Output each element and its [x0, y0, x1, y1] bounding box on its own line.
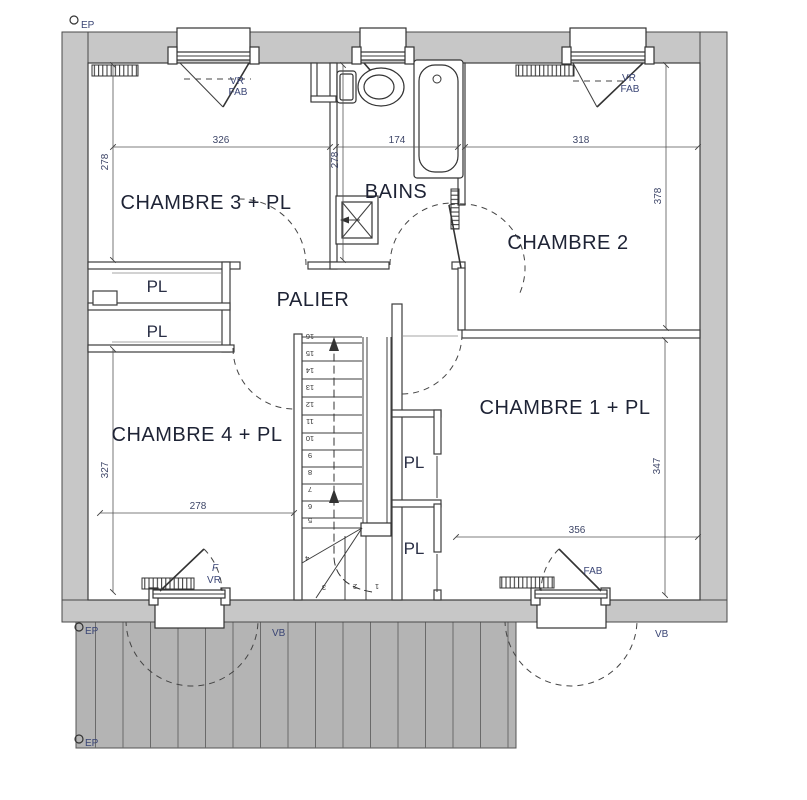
radiator-chambre1	[500, 577, 554, 588]
closet-label-right-top: PL	[404, 453, 425, 472]
stair-step-number: 14	[306, 366, 314, 375]
stair-step-number: 8	[308, 468, 312, 477]
deck-terrace: EP EP VB VB	[75, 618, 669, 749]
dim-chambre2-depth: 378	[653, 187, 664, 204]
stair-step-number: 7	[308, 485, 312, 494]
door-arc-chambre1	[402, 334, 462, 394]
room-label-chambre1: CHAMBRE 1 + PL	[480, 397, 651, 419]
dim-chambre1-width: 356	[569, 525, 586, 536]
room-label-chambre3: CHAMBRE 3 + PL	[121, 192, 292, 214]
radiator-chambre2	[516, 65, 574, 76]
room-label-chambre2: CHAMBRE 2	[507, 232, 628, 254]
door-arc-bains	[390, 203, 452, 265]
room-label-palier: PALIER	[277, 289, 350, 311]
stair-step-number: 11	[306, 417, 314, 426]
closet-label-left-top: PL	[147, 277, 168, 296]
stair-step-number: 10	[306, 434, 314, 443]
vb-label-left: VB	[272, 628, 286, 639]
closet-label-right-bottom: PL	[404, 539, 425, 558]
dim-chambre4-width: 278	[190, 501, 207, 512]
stair-step-number: 6	[308, 502, 312, 511]
stair-step-number: 13	[306, 383, 314, 392]
stair-step-number: 12	[306, 400, 314, 409]
dim-chambre3-width: 326	[213, 135, 230, 146]
fab-label-window-chambre1: FAB	[584, 566, 603, 577]
towel-radiator	[451, 189, 459, 229]
dim-bains-width: 174	[389, 135, 406, 146]
f-label-window-chambre4: F	[212, 563, 219, 574]
stair-step-number: 4	[305, 554, 309, 563]
door-arc-chambre4	[233, 348, 294, 409]
dim-chambre2-width: 318	[573, 135, 590, 146]
winder-edge	[302, 528, 362, 563]
stair-step-number: 1	[375, 582, 379, 591]
window-chambre3: VR FAB	[168, 28, 259, 107]
vr-label-window3: VR	[230, 76, 244, 87]
walk-arrow-icon	[329, 337, 339, 351]
vb-label-right: VB	[655, 629, 669, 640]
shower-sink	[336, 196, 378, 244]
floor-plan-page: EP EP VB VB EP VR FAB F	[0, 0, 807, 800]
dim-chambre3-depth: 278	[100, 153, 111, 170]
ep-marker-icon	[70, 16, 78, 24]
stair-step-number: 2	[353, 582, 357, 591]
floor-plan-drawing: EP EP VB VB EP VR FAB F	[0, 0, 807, 800]
room-label-bains: BAINS	[365, 181, 428, 203]
radiator-chambre4	[142, 578, 194, 589]
stair-step-number: 3	[322, 583, 326, 592]
ep-label-deck-top: EP	[85, 626, 99, 637]
stair-newel	[361, 523, 391, 536]
stair-step-number: 16	[306, 332, 314, 341]
room-label-chambre4: CHAMBRE 4 + PL	[112, 424, 283, 446]
fab-label-window-chambre2: FAB	[621, 84, 640, 95]
window-chambre2: VR FAB	[562, 28, 654, 107]
shutter-swing-arc-right	[505, 620, 637, 686]
stair-step-number: 9	[308, 451, 312, 460]
stair-step-number: 15	[306, 349, 314, 358]
walk-arrow-icon	[329, 489, 339, 503]
fab-label-window3: FAB	[229, 87, 248, 98]
vr-label-window-chambre4: VR	[207, 575, 221, 586]
bathtub	[414, 60, 463, 178]
closet-label-left-bottom: PL	[147, 322, 168, 341]
ep-label-deck-bottom: EP	[85, 738, 99, 749]
ep-label-top: EP	[81, 20, 95, 31]
dim-chambre1-depth: 347	[652, 457, 663, 474]
dim-bains-depth: 278	[330, 151, 341, 168]
staircase: 16 15 14 13 12 11 10 9 8 7 6 5 4 3 2 1	[302, 332, 391, 600]
toilet	[337, 68, 404, 106]
ep-marker-top: EP	[70, 16, 95, 31]
dim-chambre4-depth: 327	[100, 461, 111, 478]
radiator-chambre3	[92, 65, 138, 76]
vr-label-window-chambre2: VR	[622, 73, 636, 84]
stair-step-number: 5	[308, 516, 312, 525]
